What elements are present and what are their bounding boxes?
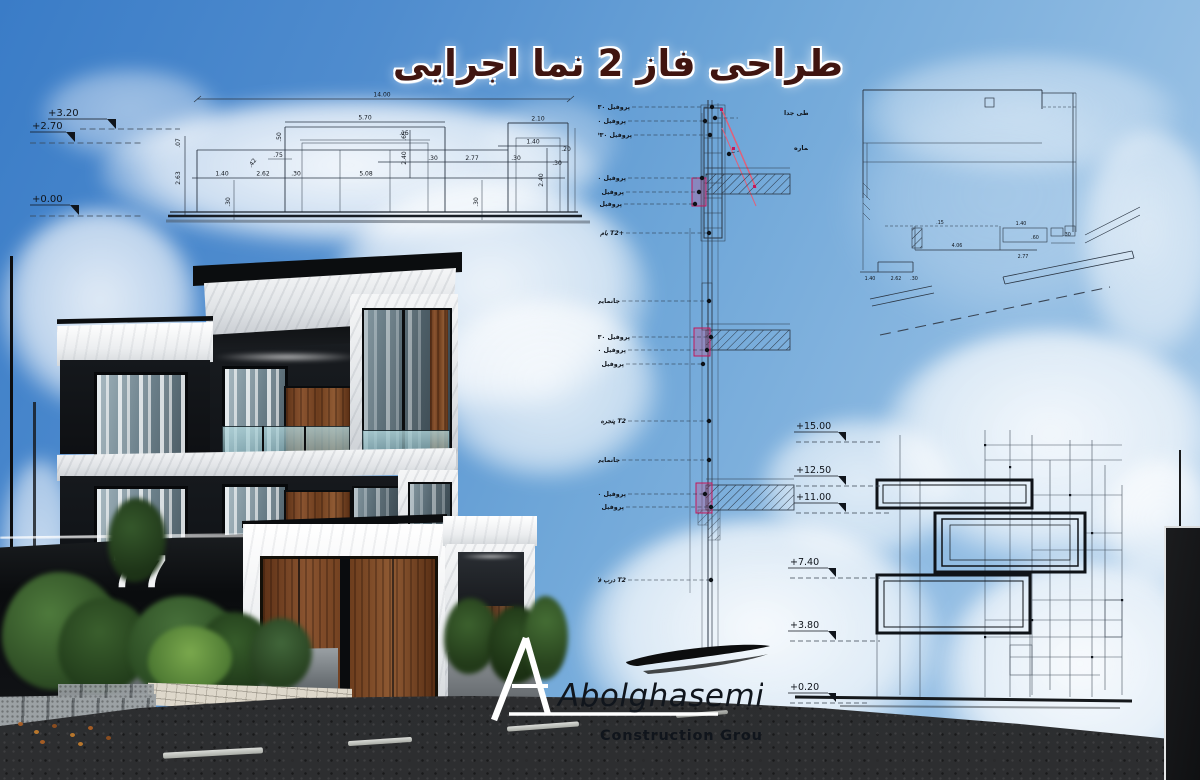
- garage-door-seam: [392, 556, 394, 700]
- entrance-downlight: [462, 554, 520, 559]
- level-label: +0.20: [790, 682, 819, 693]
- level-markers: +3.20 +2.70 +0.00: [30, 108, 180, 216]
- dim: .30: [552, 160, 562, 167]
- detail-lines: [860, 90, 1140, 335]
- page-title: طراحی فاز 2 نما اجرایی: [393, 42, 843, 85]
- light-pole-2: [33, 402, 36, 547]
- wall-section-detail: پروفیل ۳۰*۳۰ پروفیل ۳۰*۳۰ پروفیل ۳۰*۳۰ ق…: [598, 88, 808, 688]
- label-profile: پروفیل ۳۰*۳۰: [598, 491, 626, 498]
- dim: .65: [401, 131, 408, 141]
- level-label: +11.00: [796, 492, 831, 503]
- label-profile: پروفیل ۳۰*۳۰: [598, 347, 626, 354]
- dim: 14.00: [373, 92, 390, 99]
- dim: 1.40: [526, 139, 540, 146]
- dim: 5.70: [358, 115, 372, 122]
- garage-door-divider: [340, 556, 350, 700]
- dim: 2.40: [401, 151, 408, 165]
- label-profile: پروفیل ۳۰*۳۰: [598, 175, 626, 182]
- label-window: پنجره T2: [601, 418, 627, 425]
- label-roof: بام T2+: [599, 230, 624, 237]
- label-profile: پروفیل ۳۰*۳۰: [598, 504, 624, 511]
- dim: .30: [1063, 232, 1071, 238]
- dim: 2.77: [465, 155, 479, 162]
- edge-building-line: [1179, 450, 1181, 528]
- dim: 5.08: [359, 171, 373, 178]
- dim: .60: [1031, 235, 1039, 241]
- dim: .30: [910, 276, 918, 282]
- granite-curb-upper: [58, 684, 154, 698]
- label-curtain-wall: جانمایی شبکه کرتین وال: [598, 457, 620, 464]
- label-profile: پروفیل ۳۰*۳۰: [598, 201, 622, 208]
- ground-line: [795, 697, 1132, 701]
- dim: 4.06: [952, 243, 963, 249]
- level-label: +3.80: [790, 620, 819, 631]
- level-label: +3.20: [48, 108, 79, 119]
- fallen-leaf: [106, 736, 111, 740]
- dim: .30: [473, 197, 480, 207]
- label-profile: پروفیل ۳۰*۳۰: [598, 334, 630, 341]
- detail-dims: .15 1.40 .60 .30 4.06 2.77 1.40 2.62 .30: [865, 220, 1071, 282]
- dim: .30: [291, 171, 301, 178]
- fallen-leaf: [34, 730, 39, 734]
- section-structure: [690, 100, 794, 653]
- level-label: +15.00: [796, 421, 831, 432]
- dim: .50: [276, 132, 283, 142]
- logo-subtitle: Construction Group: [600, 728, 763, 744]
- dim: 1.40: [1016, 221, 1027, 227]
- fallen-leaf: [78, 742, 83, 746]
- led-strip-light: [212, 352, 362, 362]
- window-frames: [877, 480, 1085, 633]
- label-flashing: فلاشینگ شماره A: [794, 144, 808, 152]
- dim: .20: [561, 146, 571, 153]
- fallen-leaf: [52, 724, 57, 728]
- level-markers-right: +15.00 +12.50 +11.00 +7.40 +3.80 +0.20: [788, 421, 890, 703]
- label-door: درب فلزی سواره T2: [598, 577, 627, 584]
- facade-elevation-drawing: +3.20 +2.70 +0.00 14.00 5.70 2.10 .15 1.…: [30, 88, 600, 238]
- fallen-leaf: [88, 726, 93, 730]
- dim: .07: [175, 138, 182, 148]
- node-dots: [984, 444, 1123, 658]
- logo-name: Abolghasemi: [556, 678, 763, 714]
- fallen-leaf: [70, 733, 75, 737]
- poster: +3.20 +2.70 +0.00 14.00 5.70 2.10 .15 1.…: [0, 0, 1200, 780]
- level-label: +7.40: [790, 557, 819, 568]
- label-box: قوطی جدا: [784, 110, 808, 117]
- dim: .75: [273, 152, 283, 159]
- dim: 2.40: [538, 173, 545, 187]
- dim: .42: [247, 157, 258, 169]
- dim: 2.62: [891, 276, 902, 282]
- fallen-leaf: [18, 722, 23, 726]
- dim: .30: [511, 155, 521, 162]
- side-elevation-drawing: +15.00 +12.50 +11.00 +7.40 +3.80 +0.20: [780, 405, 1180, 720]
- parapet-plan-detail: .15 1.40 .60 .30 4.06 2.77 1.40 2.62 .30: [845, 85, 1140, 355]
- dim: 1.40: [865, 276, 876, 282]
- dim: 2.63: [175, 171, 182, 185]
- fallen-leaf: [40, 740, 45, 744]
- label-profile: پروفیل ۳۰*۳۰: [598, 132, 632, 139]
- company-logo: Abolghasemi Construction Group: [478, 628, 763, 753]
- dim: 2.10: [531, 116, 545, 123]
- left-volume-window: [94, 372, 188, 458]
- dim: 2.62: [256, 171, 270, 178]
- level-label: +2.70: [32, 121, 63, 132]
- dimension-labels: 14.00 5.70 2.10 .15 1.40 .30 2.77 .30 .2…: [175, 92, 571, 207]
- level-label: +0.00: [32, 194, 63, 205]
- dim: 2.77: [1018, 254, 1029, 260]
- dim: 1.40: [215, 171, 229, 178]
- entrance-cap: [443, 516, 537, 546]
- dim: .30: [225, 197, 232, 207]
- dim: .15: [936, 220, 944, 226]
- dim: .30: [428, 155, 438, 162]
- label-profile: پروفیل ۳۰*۳۰: [598, 361, 624, 368]
- edge-building-corner: [1164, 526, 1200, 780]
- label-profile: پروفیل ۳۰*۳۰: [598, 104, 630, 111]
- label-profile: پروفیل ۳۰*۳۰: [598, 189, 624, 196]
- label-curtain-wall: جانمایی شبکه کرتین وال: [598, 298, 620, 305]
- label-profile: پروفیل ۳۰*۳۰: [598, 118, 626, 125]
- level-label: +12.50: [796, 465, 831, 476]
- ground-shadow: [840, 706, 1120, 708]
